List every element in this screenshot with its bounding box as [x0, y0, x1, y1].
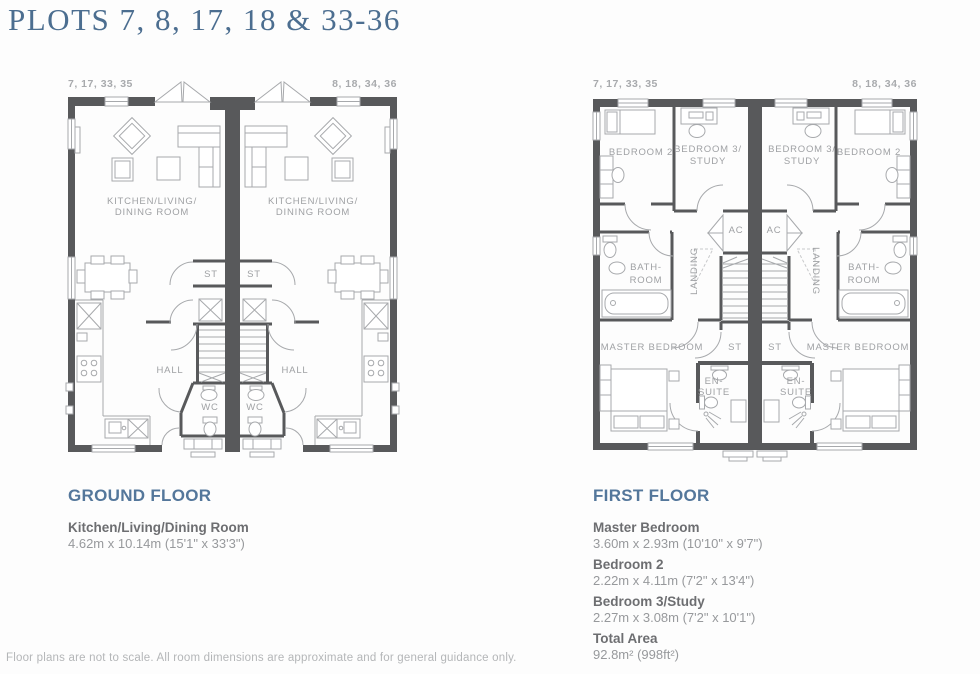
room-label-bedroom2: BEDROOM 2: [609, 147, 673, 158]
plot-label-left: 7, 17, 33, 35: [68, 78, 133, 90]
room-name: Master Bedroom: [593, 520, 923, 536]
room-label-store: ST: [768, 342, 782, 353]
room-label-bathroom: BATH-: [848, 262, 880, 273]
room-label-wc: WC: [201, 402, 218, 413]
room-label-store: ST: [204, 269, 218, 280]
ground-floor-plan-drawing: 7, 17, 33, 35 8, 18, 34, 36 KITCHEN/LIVI…: [60, 72, 405, 462]
room-label-ac: AC: [767, 225, 782, 236]
room-label-bedroom3: STUDY: [784, 156, 820, 167]
room-label-kitchen: DINING ROOM: [115, 207, 189, 218]
plot-label-left: 7, 17, 33, 35: [593, 78, 658, 90]
dimension-entry: Bedroom 3/Study 2.27m x 3.08m (7'2" x 10…: [593, 594, 923, 626]
page-title: PLOTS 7, 8, 17, 18 & 33-36: [8, 2, 401, 38]
disclaimer-note: Floor plans are not to scale. All room d…: [6, 652, 976, 664]
room-label-bedroom2: BEDROOM 2: [837, 147, 901, 158]
room-label-kitchen: KITCHEN/LIVING/: [107, 196, 197, 207]
room-size: 2.22m x 4.11m (7'2" x 13'4"): [593, 573, 923, 589]
room-label-ensuite: EN-: [705, 376, 724, 387]
dimension-entry: Bedroom 2 2.22m x 4.11m (7'2" x 13'4"): [593, 557, 923, 589]
room-label-landing: LANDING: [810, 247, 821, 295]
room-label-bedroom3: STUDY: [690, 156, 726, 167]
room-label-master-bedroom: MASTER BEDROOM: [601, 342, 704, 353]
plot-label-right: 8, 18, 34, 36: [852, 78, 917, 90]
room-label-bathroom: BATH-: [630, 262, 662, 273]
room-name: Bedroom 2: [593, 557, 923, 573]
plot-label-right: 8, 18, 34, 36: [332, 78, 397, 90]
room-label-kitchen: KITCHEN/LIVING/: [268, 196, 358, 207]
room-size: 3.60m x 2.93m (10'10" x 9'7"): [593, 536, 923, 552]
room-label-bathroom: ROOM: [848, 275, 881, 286]
room-label-landing: LANDING: [689, 247, 700, 295]
room-name: Kitchen/Living/Dining Room: [68, 520, 398, 536]
room-label-store: ST: [247, 269, 261, 280]
room-label-hall: HALL: [282, 365, 309, 376]
room-label-store: ST: [728, 342, 742, 353]
room-label-hall: HALL: [157, 365, 184, 376]
room-size: 4.62m x 10.14m (15'1" x 33'3"): [68, 536, 398, 552]
room-label-ensuite: SUITE: [780, 387, 812, 398]
room-size: 2.27m x 3.08m (7'2" x 10'1"): [593, 610, 923, 626]
first-floor-plan-drawing: 7, 17, 33, 35 8, 18, 34, 36 BEDROOM 2 BE…: [585, 72, 925, 462]
room-label-bathroom: ROOM: [630, 275, 663, 286]
room-label-kitchen: DINING ROOM: [276, 207, 350, 218]
dimension-entry: Kitchen/Living/Dining Room 4.62m x 10.14…: [68, 520, 398, 552]
room-name: Total Area: [593, 631, 923, 647]
first-floor-legend: FIRST FLOOR Master Bedroom 3.60m x 2.93m…: [593, 486, 923, 668]
room-label-wc: WC: [246, 402, 263, 413]
room-label-bedroom3: BEDROOM 3/: [674, 144, 742, 155]
first-floor-heading: FIRST FLOOR: [593, 486, 923, 506]
ground-floor-heading: GROUND FLOOR: [68, 486, 398, 506]
room-label-ensuite: EN-: [787, 376, 806, 387]
room-label-master-bedroom: MASTER BEDROOM: [807, 342, 910, 353]
ground-floor-legend: GROUND FLOOR Kitchen/Living/Dining Room …: [68, 486, 398, 557]
room-name: Bedroom 3/Study: [593, 594, 923, 610]
room-label-bedroom3: BEDROOM 3/: [768, 144, 836, 155]
dimension-entry: Master Bedroom 3.60m x 2.93m (10'10" x 9…: [593, 520, 923, 552]
room-label-ensuite: SUITE: [698, 387, 730, 398]
room-label-ac: AC: [729, 225, 744, 236]
